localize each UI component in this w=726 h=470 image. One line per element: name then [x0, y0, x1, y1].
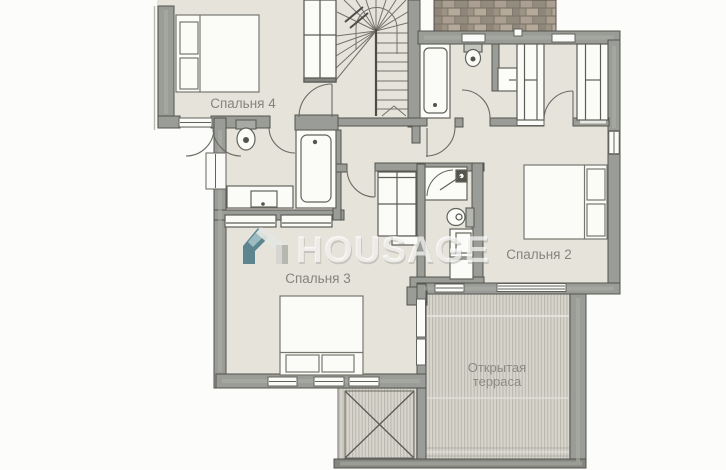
svg-text:Спальня 4: Спальня 4 — [210, 96, 276, 111]
svg-text:Спальня 2: Спальня 2 — [506, 247, 572, 262]
svg-text:терраса: терраса — [473, 374, 522, 389]
svg-text:HOUSAGE: HOUSAGE — [296, 229, 490, 270]
svg-text:Спальня 3: Спальня 3 — [285, 271, 351, 286]
svg-text:Открытая: Открытая — [468, 360, 526, 375]
